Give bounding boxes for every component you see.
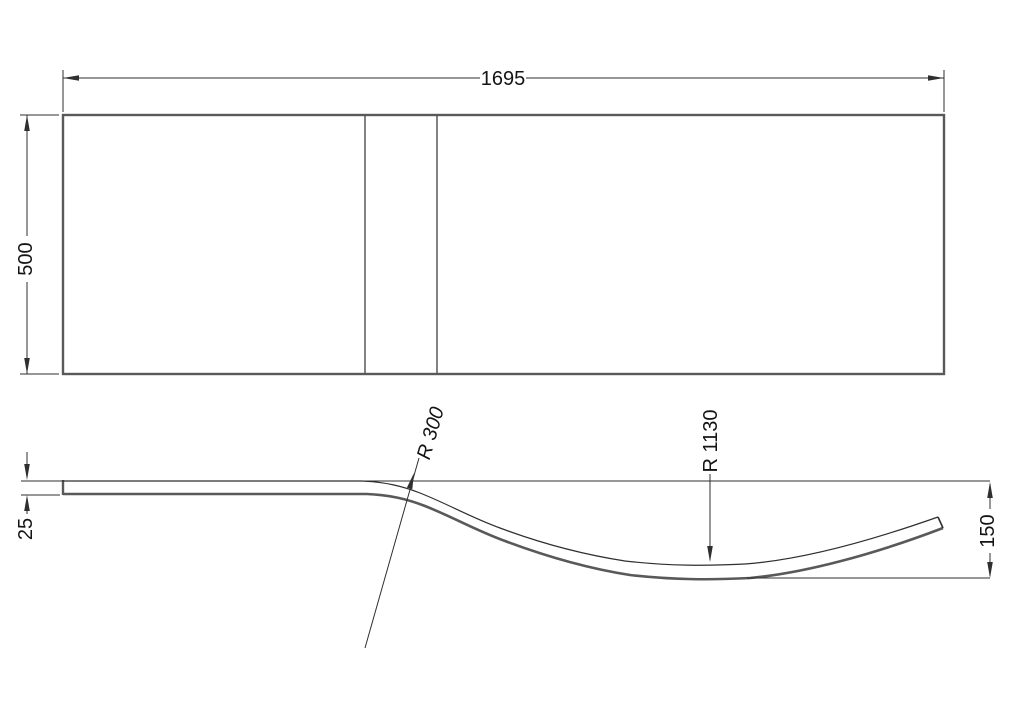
- radius-300-label: R 300: [413, 405, 449, 462]
- object-outline-group: [63, 115, 944, 579]
- arrowhead-group: [24, 75, 993, 578]
- arrow-25-down: [24, 464, 30, 480]
- arrow-150-up: [987, 482, 993, 498]
- radius-1130-label: R 1130: [700, 409, 722, 472]
- plan-view-panel-outline: [63, 115, 944, 374]
- end-height-label: 150: [977, 514, 999, 547]
- arrow-r1130-down: [707, 546, 713, 562]
- arrow-500-up: [24, 115, 30, 131]
- arrow-1695-right: [928, 75, 944, 81]
- arrow-1695-left: [63, 75, 79, 81]
- plan-height-label: 500: [15, 242, 37, 275]
- profile-right-end-cap: [938, 517, 943, 528]
- drawing-canvas: 1695 500 25 150 R 1130 R 300: [0, 0, 1024, 724]
- plan-width-label: 1695: [481, 68, 526, 90]
- object-thin-group: [63, 116, 943, 565]
- profile-lower-surface: [63, 494, 943, 579]
- dimension-label-group: 1695 500 25 150 R 1130 R 300: [15, 68, 999, 548]
- arrow-500-down: [24, 358, 30, 374]
- technical-drawing-page: 1695 500 25 150 R 1130 R 300: [0, 0, 1024, 724]
- thickness-label: 25: [15, 518, 37, 540]
- arrow-150-down: [987, 562, 993, 578]
- arrow-25-up: [24, 495, 30, 511]
